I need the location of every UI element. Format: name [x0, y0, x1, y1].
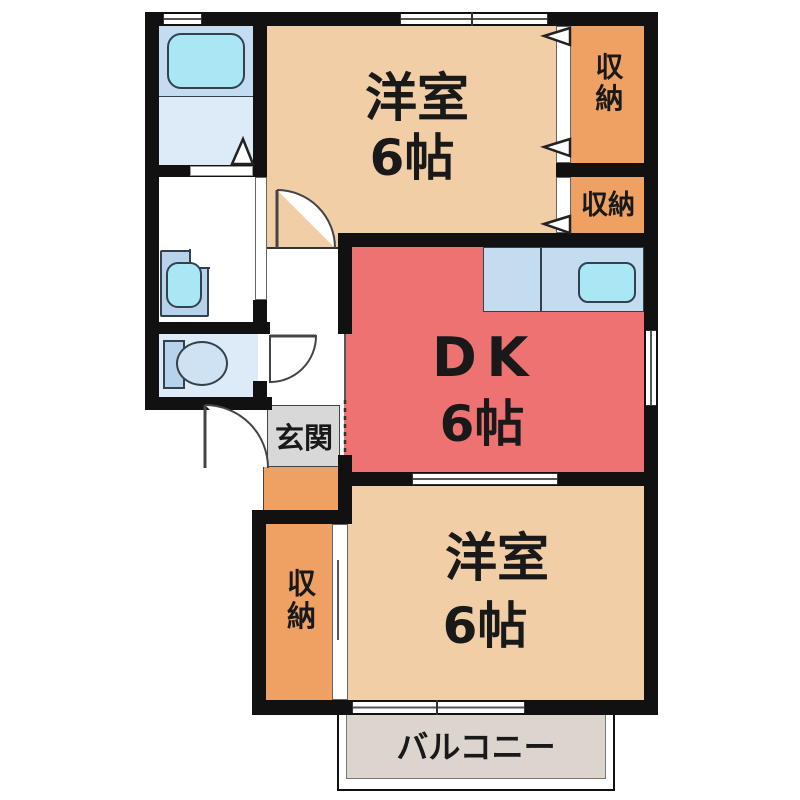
western-room-top-label: 洋室 [332, 72, 502, 127]
door-top-room [277, 190, 335, 248]
balcony-label: バルコニー [356, 731, 596, 765]
storage-mid-label: 収納 [575, 192, 641, 220]
closet-triangle-1 [544, 28, 570, 45]
western-room-bottom-size: 6帖 [405, 600, 565, 653]
door-toilet [270, 336, 316, 382]
western-room-bottom-label: 洋室 [412, 532, 582, 587]
closet-triangle-2 [544, 139, 570, 156]
closet-triangle-3 [544, 216, 570, 233]
storage-top-label: 収納 [593, 52, 622, 115]
door-entrance [205, 405, 268, 468]
floor-plan: 洋室 6帖 収納 収納 DK 6帖 玄関 収納 洋室 6帖 バルコニー [0, 0, 800, 800]
dk-size: 6帖 [402, 398, 562, 451]
storage-bottom-label: 収納 [284, 568, 314, 633]
dk-label: DK [400, 330, 570, 387]
bathroom-door-triangle [232, 139, 253, 164]
western-room-top-size: 6帖 [332, 132, 492, 185]
entrance-label: 玄関 [271, 423, 337, 453]
